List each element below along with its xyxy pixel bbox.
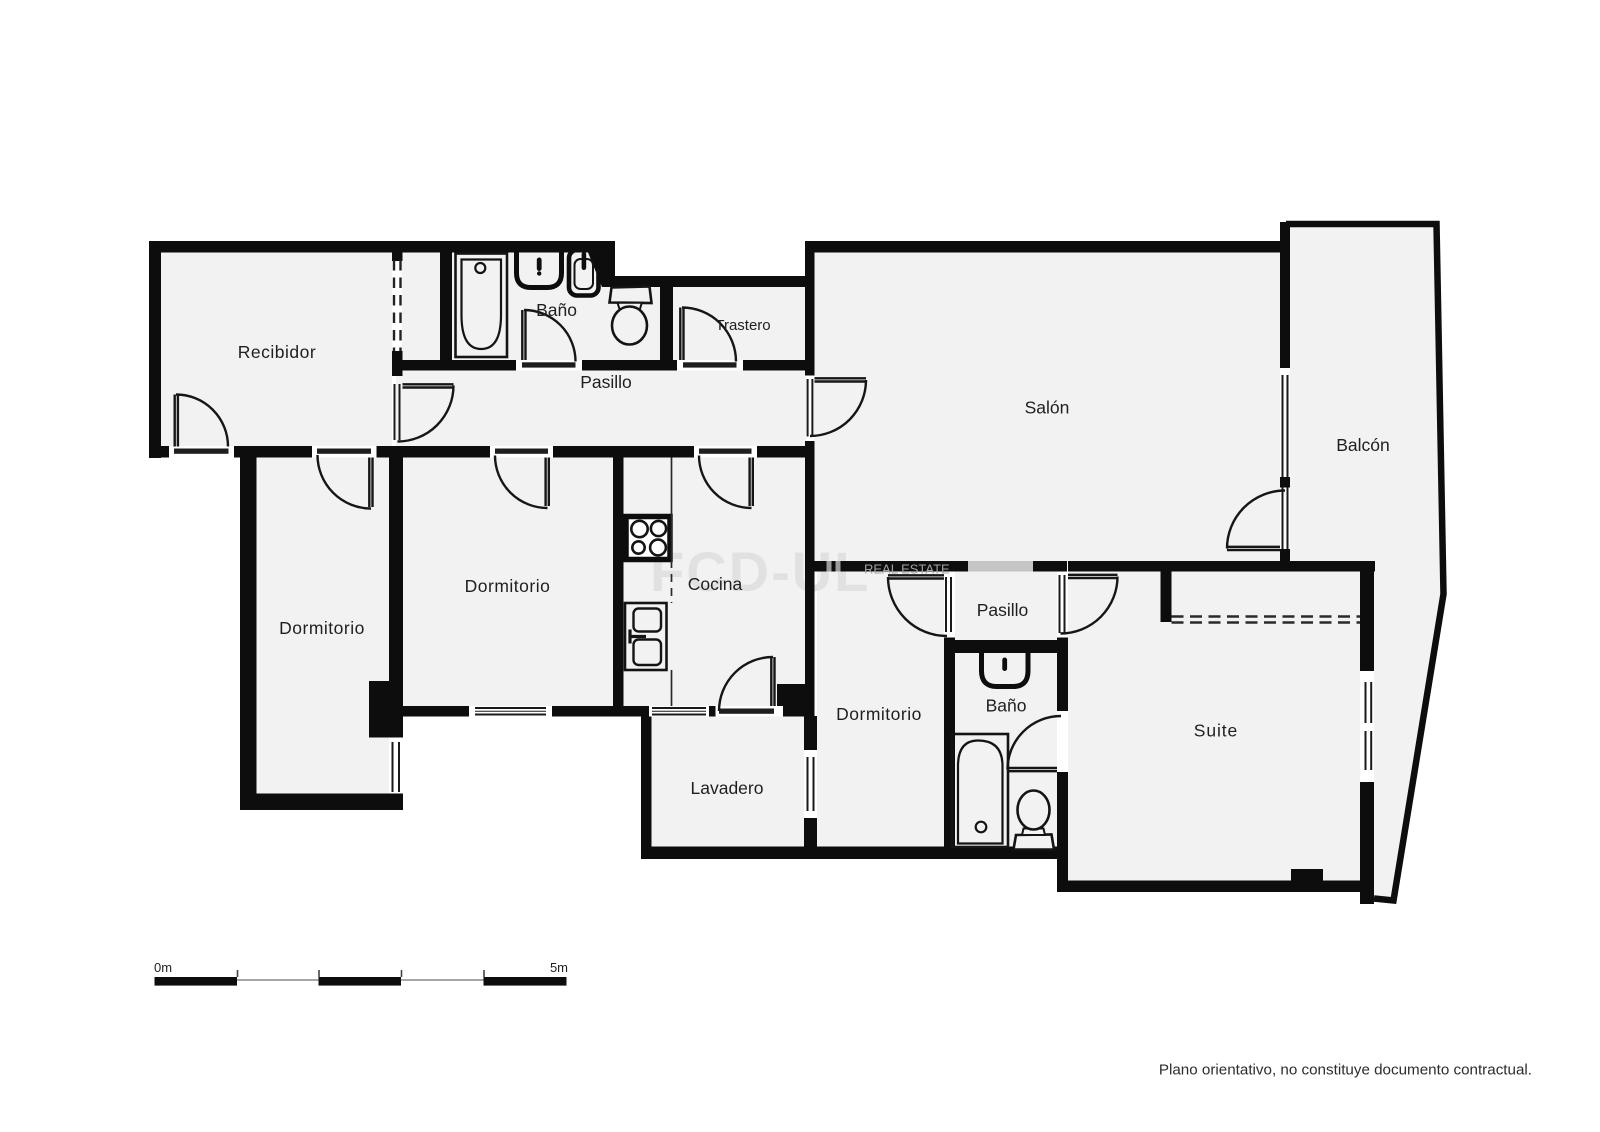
svg-text:Dormitorio: Dormitorio (836, 704, 922, 724)
svg-text:Pasillo: Pasillo (580, 372, 632, 392)
svg-text:Trastero: Trastero (715, 317, 770, 334)
svg-text:5m: 5m (550, 960, 568, 975)
svg-text:Suite: Suite (1194, 721, 1238, 741)
svg-text:Salón: Salón (1025, 398, 1070, 418)
svg-text:Baño: Baño (986, 696, 1027, 716)
svg-text:Baño: Baño (536, 300, 577, 320)
svg-text:Pasillo: Pasillo (977, 600, 1029, 620)
svg-text:Cocina: Cocina (688, 574, 743, 594)
svg-text:Lavadero: Lavadero (691, 778, 764, 798)
svg-text:Dormitorio: Dormitorio (279, 618, 365, 638)
svg-text:Plano orientativo, no constitu: Plano orientativo, no constituye documen… (1159, 1062, 1532, 1079)
svg-text:0m: 0m (154, 960, 172, 975)
svg-text:Recibidor: Recibidor (238, 342, 316, 362)
svg-text:Balcón: Balcón (1336, 435, 1390, 455)
svg-text:Dormitorio: Dormitorio (465, 576, 551, 596)
